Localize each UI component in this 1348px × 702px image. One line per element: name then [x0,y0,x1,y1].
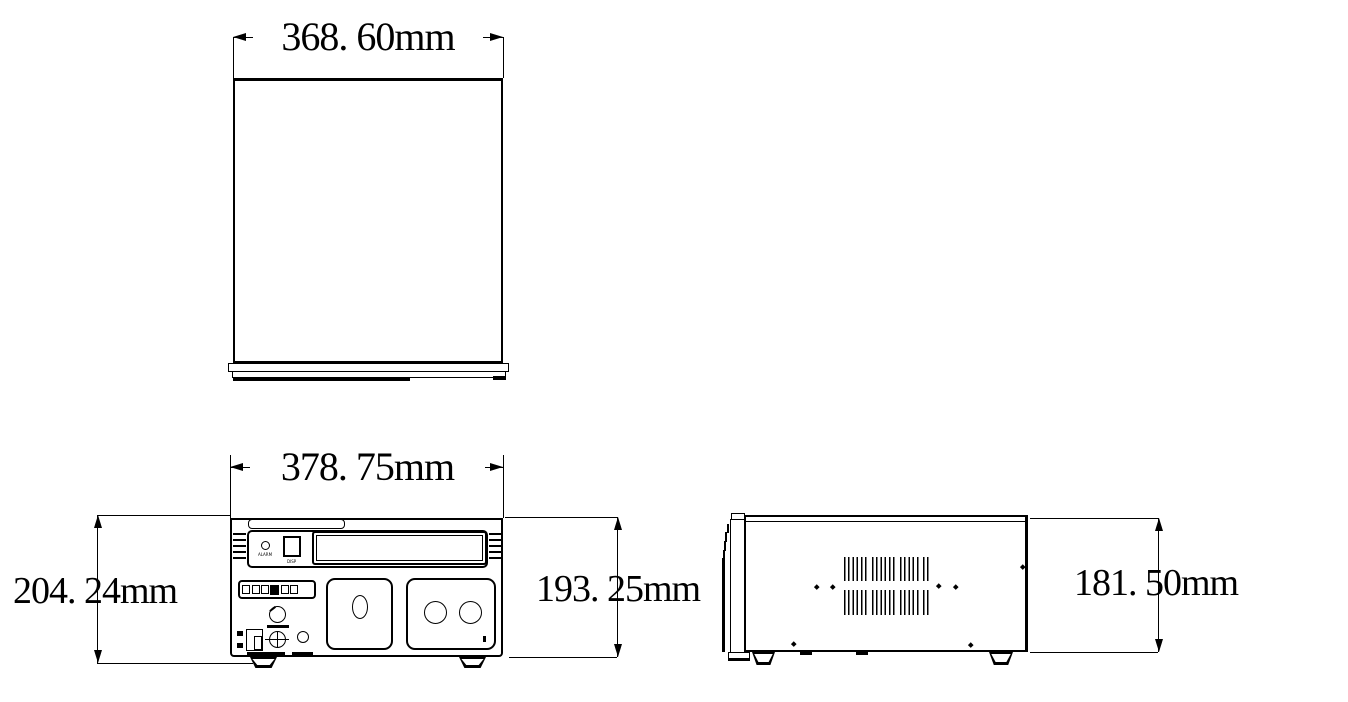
dim-label-front-overall-height: 204. 24mm [4,569,186,613]
side-bezel-foot [728,652,750,661]
small-jack[interactable] [297,631,309,643]
vent-line [489,551,502,553]
vent-line [489,545,502,547]
knob-micro-label [267,625,289,628]
dim-ext-line [503,37,504,78]
dim-ext-line [97,663,253,664]
top-view-bezel-mark [408,377,497,378]
vent-line [489,557,502,559]
right-module-mark [483,636,486,642]
vent-slots [872,557,897,581]
dimension-drawing: 368. 60mm 378. 75mm 204. 24mm 193. 25mm [0,0,1348,702]
dim-ext-line [1030,518,1158,519]
vent-slots [900,557,920,581]
disp-micro-label: DISP [287,560,296,564]
vent-line [233,533,246,535]
dim-arrow-left-icon [230,463,243,471]
top-view-bezel-mark [493,376,506,380]
vent-slots [923,590,929,615]
dim-label-side-height: 181. 50mm [1065,561,1247,605]
dim-arrow-up-icon [94,515,102,528]
dim-arrow-down-icon [94,650,102,663]
key-button[interactable] [261,585,269,594]
switch-mark [237,643,243,648]
dim-label-front-width: 378. 75mm [250,444,485,488]
vent-line [233,539,246,541]
display-window-inner [316,535,483,561]
dim-ext-line [509,657,617,658]
right-module-port [459,601,482,624]
connector-micro-label [265,652,285,656]
dim-arrow-left-icon [233,33,246,41]
side-top-inner-line [746,521,1026,522]
dim-ext-line [503,455,504,518]
side-bezel-step [727,524,729,533]
vent-slots [844,557,869,581]
vent-line [489,533,502,535]
disp-button[interactable] [283,536,301,557]
dim-arrow-up-icon [614,517,622,530]
top-view-bezel-mark [250,378,410,381]
dim-ext-line [97,515,230,516]
top-view-body [233,78,503,363]
vent-line [489,539,502,541]
vent-slots [872,590,897,615]
vent-line [233,551,246,553]
dim-arrow-right-icon [490,33,503,41]
dim-label-top-width: 368. 60mm [253,14,483,58]
bottom-mark [800,652,812,655]
vent-slots [923,557,929,581]
alarm-micro-label: ALARM [258,553,272,557]
dim-label-front-body-height: 193. 25mm [527,567,709,611]
dim-ext-line [233,37,234,78]
bottom-mark [856,652,868,655]
power-switch-rocker [254,636,262,650]
jack-micro-label [292,652,313,655]
switch-mark [237,631,243,636]
dim-arrow-right-icon [490,463,503,471]
key-button[interactable] [252,585,260,594]
vent-slots [844,590,869,615]
dim-arrow-down-icon [1155,639,1163,652]
front-foot [250,657,277,668]
vent-line [233,545,246,547]
side-foot [752,652,775,665]
front-foot [459,657,486,668]
dim-arrow-down-icon [614,644,622,657]
alarm-lamp [261,541,270,550]
vent-line [233,557,246,559]
connector-cross-v [277,631,278,648]
key-button[interactable] [242,585,250,594]
side-bezel-edge [722,558,725,652]
dim-ext-line [505,517,617,518]
handle-slot [248,519,345,529]
key-button[interactable] [290,585,298,594]
dim-arrow-up-icon [1155,518,1163,531]
side-body [744,515,1028,652]
key-button[interactable] [281,585,289,594]
right-module-port [424,601,447,624]
side-foot [989,652,1013,665]
side-bezel [730,519,745,653]
vent-slots [900,590,920,615]
middle-module-slot [352,595,368,619]
dim-ext-line [1030,652,1158,653]
key-button-active[interactable] [270,585,279,595]
